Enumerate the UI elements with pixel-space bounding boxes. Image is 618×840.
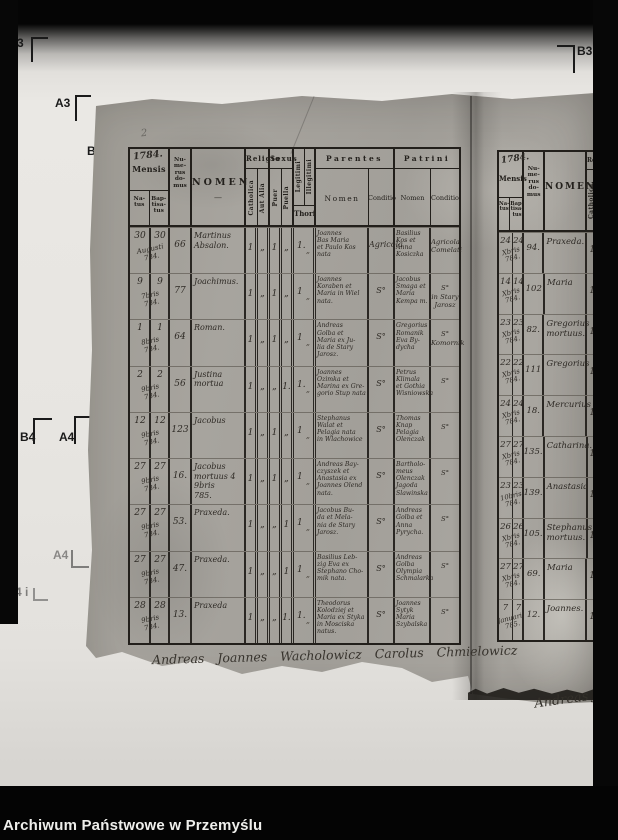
cell-godparents-name: Thomas Knap Pelagia Olenczak	[395, 413, 431, 458]
cell-natus-date: 27	[499, 562, 512, 572]
right-header-mensis-label: Mensis	[499, 174, 522, 183]
cell-legitimi-thori: 1„	[294, 320, 316, 365]
cell-child-name: Joannes.	[545, 600, 588, 640]
year-note: 1784.	[133, 148, 164, 162]
cell-godparents-name: Gregorius Romanik Eva By- dycha	[395, 320, 431, 365]
cell-puella-mark: „	[282, 228, 294, 273]
cell-catholica-mark: 1	[246, 413, 258, 458]
header-patrini-conditio-label: Conditio	[431, 194, 459, 202]
table-row: 28289bris 784.13.Praxeda1„„1.1.„Theodoru…	[130, 597, 459, 643]
header-patrini-label: Patrini	[395, 149, 459, 169]
cell-puer-mark: 1	[270, 274, 282, 319]
cell-legitimi-thori: 1„	[294, 552, 316, 597]
cell-puer-mark: „	[270, 367, 282, 412]
cell-date: 28289bris 784.	[130, 598, 170, 643]
cell-natus-date: 12	[130, 416, 150, 426]
cell-child-name: Anastasia	[545, 478, 588, 518]
cell-date: 27279bris 784.	[130, 459, 170, 504]
header-aut-alia-cell: Aut Alia	[258, 169, 269, 227]
right-header-numerus-domus-label: Nu- me- rus do- mus	[524, 152, 543, 198]
cell-month: 9bris 784.	[127, 564, 175, 589]
header-mensis-label: Mensis	[130, 164, 168, 174]
header-nomen-column: NOMEN —	[192, 149, 246, 225]
cell-parents-name: Joannes Ozimka et Marina ex Gre- gorio S…	[316, 367, 369, 412]
header-parentes-conditio-cell: Conditio	[369, 169, 395, 227]
header-sexus-label: Sexus	[270, 149, 292, 169]
cell-aut-alia-mark: „	[258, 274, 270, 319]
cell-child-name: Maria	[545, 559, 587, 599]
cell-parents-name: Andreas Bay- czyszek et Anastasia ex Joa…	[316, 459, 369, 504]
cell-date: 2626Xbris 784.	[499, 519, 524, 559]
cell-baptisatus-date: 2	[150, 370, 170, 380]
cell-child-name: Mercurius	[544, 396, 587, 436]
cell-aut-alia-mark: „	[258, 552, 270, 597]
cell-natus-date: 23	[499, 318, 512, 328]
cell-month: 7bris 784.	[127, 287, 175, 312]
cell-child-name: Praxeda.	[192, 505, 246, 550]
right-header-mensis-subcolumns: Na- tus Bap- tisa- tus	[499, 197, 522, 230]
cell-child-name: Gregorius mortuus.	[544, 315, 587, 355]
crop-mark-a4-label: A4	[59, 430, 74, 444]
table-row: 12129bris 784.123Jacobus1„1„1„Stephanus …	[130, 412, 459, 458]
cell-puella-mark: „	[282, 459, 294, 504]
cell-parents-name: Stephanus Walat et Pelagia nata in Wlach…	[316, 413, 369, 458]
cell-month: 9bris 784.	[127, 379, 175, 404]
header-parentes-column: Parentes Nomen Conditio	[316, 149, 395, 225]
cell-godparents-name: Petrus Klimala et Gothia Wisniowska	[395, 367, 431, 412]
cell-child-name: Stephanus mortuus.	[545, 519, 588, 559]
table-row: 997bris 784.77Joachimus.1„1„1„Joannes Ko…	[130, 273, 459, 319]
cell-godparents-name: Joannes Sytyk Maria Szybalska	[395, 598, 431, 643]
cell-natus-date: 27	[130, 462, 150, 472]
cell-aut-alia-mark: „	[258, 598, 270, 643]
crop-mark-b4-bracket-icon	[33, 418, 52, 444]
cell-puella-mark: 1.	[282, 367, 294, 412]
cell-legitimi-thori: 1.„	[294, 228, 316, 273]
cell-catholica-mark: 1	[246, 505, 258, 550]
cell-godparents-condition: S°	[431, 598, 459, 643]
cell-legitimi-mark: 1.	[297, 380, 306, 390]
table-row: 2626Xbris 784.105.Stephanus mortuus.1	[499, 518, 597, 559]
film-top-fade	[0, 0, 618, 72]
cell-legitimi-thori: 1„	[294, 459, 316, 504]
crop-mark-a4-lower-bracket-icon	[71, 550, 89, 568]
header-puella-cell: Puella	[282, 169, 293, 227]
cell-date: 118bris 784.	[130, 320, 170, 365]
cell-aut-alia-mark: „	[258, 459, 270, 504]
cell-illegitimi-mark: „	[306, 523, 310, 532]
cell-baptisatus-date: 1	[150, 323, 170, 333]
crop-mark-a3-bracket-icon	[75, 95, 91, 121]
cell-legitimi-mark: 1	[297, 333, 303, 343]
header-puer-cell: Puer	[270, 169, 282, 227]
cell-date: 2424Xbris 784.	[499, 396, 524, 436]
cell-legitimi-mark: 1.	[297, 241, 306, 251]
table-row: 2727Xbris 784.69.Maria1	[499, 558, 597, 599]
table-row: 229bris 784.56Justina mortua1„„1.1.„Joan…	[130, 366, 459, 412]
book-gutter-fold-line	[470, 96, 472, 694]
crop-mark-a4-lower-label: A4	[53, 548, 68, 562]
cell-date: 229bris 784.	[130, 367, 170, 412]
bottom-caption-bar: Archiwum Państwowe w Przemyślu	[0, 786, 618, 840]
table-row: 2424Xbris 784.18.Mercurius1	[499, 395, 597, 436]
cell-date: 2323Xbris 784.	[499, 315, 524, 355]
cell-parents-condition: S°	[369, 552, 395, 597]
cell-parents-name: Basilius Leb- zig Eva ex Stephano Cho- m…	[316, 552, 369, 597]
cell-aut-alia-mark: „	[258, 413, 270, 458]
cell-aut-alia-mark: „	[258, 367, 270, 412]
header-mensis-column: 1784. Mensis Na- tus Bap- tisa- tus	[130, 149, 170, 225]
cell-natus-date: 28	[130, 601, 150, 611]
header-legitimi-label: Legitimi	[295, 161, 302, 192]
cell-illegitimi-mark: „	[306, 292, 310, 301]
header-legitimi-subcolumns: Legitimi Illegitimi	[294, 149, 314, 206]
header-religio-subcolumns: Catholica Aut Alia	[246, 169, 268, 227]
cell-child-name: Joachimus.	[192, 274, 246, 319]
cell-parents-condition: S°	[369, 505, 395, 550]
cell-puella-mark: 1	[282, 552, 294, 597]
cell-godparents-name: Basilius Kos et Anna Kosiczka	[395, 228, 431, 273]
table-row: 118bris 784.64Roman.1„1„1„Andreas Golba …	[130, 319, 459, 365]
cell-godparents-name: Bartholo- meus Olenczak Jagoda Slawinska	[395, 459, 431, 504]
cell-legitimi-thori: 1„	[294, 274, 316, 319]
cell-date: 27279bris 784.	[130, 505, 170, 550]
cell-baptisatus-date: 12	[150, 416, 170, 426]
cell-godparents-condition: S°	[431, 459, 459, 504]
cell-natus-date: 30	[130, 231, 150, 241]
cell-natus-date: 9	[130, 277, 150, 287]
cell-catholica-mark: 1	[246, 552, 258, 597]
header-patrini-nomen-label: Nomen	[401, 194, 425, 202]
cell-baptisatus-date: 27	[150, 462, 170, 472]
cell-baptisatus-date: 9	[150, 277, 170, 287]
cell-natus-date: 27	[130, 555, 150, 565]
header-catholica-cell: Catholica	[246, 169, 258, 227]
cell-child-name: Jacobus mortuus 4 9bris 785.	[192, 459, 246, 504]
table-row: 27279bris 784.16.Jacobus mortuus 4 9bris…	[130, 458, 459, 504]
cell-parents-name: Andreas Golba et Maria ex Ju- lia de Sta…	[316, 320, 369, 365]
table-row: 27279bris 784.53.Praxeda.1„„11„Jacobus B…	[130, 504, 459, 550]
left-register-table: 1784. Mensis Na- tus Bap- tisa- tus Nu- …	[128, 147, 461, 645]
header-numerus-domus-column: Nu- me- rus do- mus	[170, 149, 192, 225]
crop-mark-b3-bracket-icon	[557, 45, 575, 73]
cell-child-name: Catharina.	[545, 437, 588, 477]
cell-puer-mark: 1	[270, 320, 282, 365]
cell-godparents-name: Jacobus Smaga et Maria Kempa m.	[395, 274, 431, 319]
header-aut-alia-label: Aut Alia	[259, 183, 266, 213]
header-patrini-subcolumns: Nomen Conditio	[395, 169, 459, 227]
cell-baptisatus-date: 27	[150, 555, 170, 565]
right-table-header: 1784. Mensis Na- tus Bap- tisa- tus Nu- …	[499, 152, 597, 232]
cell-godparents-condition: S° in Stary Jarosz	[431, 274, 459, 319]
cell-parents-name: Theodorus Kolodziej et Maria ex Styka in…	[316, 598, 369, 643]
cell-month: 8bris 784.	[127, 333, 175, 358]
table-row: 77Januarii 785.12.Joannes.1	[499, 599, 597, 640]
cell-month: 9bris 784.	[127, 471, 175, 496]
cell-catholica-mark: 1	[246, 320, 258, 365]
right-header-baptisatus-label: Bap- tisa- tus	[510, 198, 524, 230]
cell-child-name: Praxeda.	[544, 233, 587, 273]
crop-mark-a3-label: A3	[55, 96, 70, 110]
cell-puella-mark: 1	[282, 505, 294, 550]
cell-natus-date: 2	[130, 370, 150, 380]
cell-date: 2727Xbris 784.	[499, 559, 524, 599]
header-religio-label: Religio	[246, 149, 268, 169]
cell-aut-alia-mark: „	[258, 505, 270, 550]
table-row: 2424Xbris 784.94.Praxeda.1	[499, 232, 597, 273]
cell-date: 27279bris 784.	[130, 552, 170, 597]
cell-baptisatus-date: 28	[150, 601, 170, 611]
header-thori-label: Thori	[294, 206, 314, 225]
cell-parents-condition: S°	[369, 320, 395, 365]
cell-godparents-condition: S°	[431, 505, 459, 550]
cell-parents-name: Jacobus Bu- da et Mela- nia de Stary Jar…	[316, 505, 369, 550]
cell-natus-date: 24	[499, 399, 512, 409]
cell-parents-condition: S°	[369, 413, 395, 458]
cell-aut-alia-mark: „	[258, 320, 270, 365]
header-patrini-conditio-cell: Conditio	[431, 169, 459, 227]
table-row: 2323Xbris 784.82.Gregorius mortuus.1	[499, 314, 597, 355]
right-header-numerus-domus-column: Nu- me- rus do- mus	[524, 152, 545, 230]
cell-catholica-mark: 1	[246, 274, 258, 319]
cell-parents-condition: S°	[369, 598, 395, 643]
header-legitimi-column: Legitimi Illegitimi Thori	[294, 149, 316, 225]
header-sexus-column: Sexus Puer Puella	[270, 149, 294, 225]
cell-illegitimi-mark: „	[306, 570, 310, 579]
cell-baptisatus-date: 30	[150, 231, 170, 241]
header-illegitimi-label: Illegitimi	[306, 159, 313, 194]
crop-mark-3-bracket-icon	[31, 37, 48, 62]
cell-godparents-condition: S° Komornik	[431, 320, 459, 365]
cell-godparents-condition: S°	[431, 413, 459, 458]
cell-illegitimi-mark: „	[306, 338, 310, 347]
header-parentes-conditio-label: Conditio	[368, 194, 396, 202]
cell-puer-mark: 1	[270, 413, 282, 458]
cell-illegitimi-mark: „	[306, 246, 310, 255]
cell-puer-mark: „	[270, 552, 282, 597]
header-puer-label: Puer	[272, 189, 279, 206]
cell-child-name: Maria	[545, 274, 587, 314]
cell-natus-date: 27	[130, 508, 150, 518]
cell-puer-mark: 1	[270, 459, 282, 504]
left-table-header: 1784. Mensis Na- tus Bap- tisa- tus Nu- …	[130, 149, 459, 227]
header-parentes-label: Parentes	[316, 149, 393, 169]
table-row: 1414Xbris 784.102Maria1	[499, 273, 597, 314]
cell-date: 3030Augusti 784.	[130, 228, 170, 273]
cell-child-name: Praxeda	[192, 598, 246, 643]
cell-child-name: Roman.	[192, 320, 246, 365]
header-nomen-flourish: —	[192, 193, 244, 202]
table-row: 2727Xbris 784.135.Catharina.1	[499, 436, 597, 477]
header-patrini-column: Patrini Nomen Conditio	[395, 149, 459, 225]
cell-illegitimi-mark: „	[306, 477, 310, 486]
cell-parents-condition: S°	[369, 274, 395, 319]
cell-legitimi-thori: 1„	[294, 413, 316, 458]
cell-puella-mark: „	[282, 413, 294, 458]
cell-parents-condition: S°	[369, 459, 395, 504]
cell-month: 9bris 784.	[127, 518, 175, 543]
cell-legitimi-mark: 1	[297, 565, 303, 575]
cell-legitimi-mark: 1	[297, 287, 303, 297]
film-right-edge	[593, 0, 618, 788]
cell-natus-date: 1	[130, 323, 150, 333]
crop-mark-3-label: 3	[17, 36, 24, 50]
cell-puer-mark: 1	[270, 228, 282, 273]
header-catholica-label: Catholica	[248, 180, 255, 216]
cell-legitimi-thori: 1„	[294, 505, 316, 550]
cell-natus-date: 24	[499, 236, 512, 246]
right-header-nomen-column: NOMEN	[545, 152, 587, 230]
cell-godparents-condition: Agricola Comelati	[431, 228, 459, 273]
right-header-nomen-label: NOMEN	[545, 182, 585, 192]
cell-month: 9bris 784.	[127, 610, 175, 635]
header-parentes-nomen-cell: Nomen	[316, 169, 369, 227]
table-row: 232310bris 784.139.Anastasia1	[499, 477, 597, 518]
cell-date: 997bris 784.	[130, 274, 170, 319]
header-puella-label: Puella	[283, 186, 290, 210]
right-header-natus-label: Na- tus	[499, 198, 510, 230]
header-nomen-label: NOMEN	[192, 177, 244, 188]
cell-month: Augusti 784.	[127, 240, 175, 265]
cell-puella-mark: „	[282, 274, 294, 319]
archive-caption: Archiwum Państwowe w Przemyślu	[3, 817, 262, 834]
right-header-mensis-column: 1784. Mensis Na- tus Bap- tisa- tus	[499, 152, 524, 230]
archival-scan-viewer: 3 A3 B3 B. B4 A4 A4 4 i 2 1784. Mensis N…	[0, 0, 618, 840]
header-parentes-nomen-label: Nomen	[325, 194, 360, 203]
cell-puella-mark: „	[282, 320, 294, 365]
header-sexus-subcolumns: Puer Puella	[270, 169, 292, 227]
cell-natus-date: 26	[499, 522, 512, 532]
cell-aut-alia-mark: „	[258, 228, 270, 273]
cell-child-name: Gregorius	[544, 355, 587, 395]
cell-parents-condition: S°	[369, 367, 395, 412]
table-row: 2222Xbris 784.111Gregorius1	[499, 354, 597, 395]
cell-child-name: Justina mortua	[192, 367, 246, 412]
cell-legitimi-mark: 1.	[297, 611, 306, 621]
cell-child-name: Martinus Absalon.	[192, 228, 246, 273]
film-left-edge	[0, 0, 18, 624]
right-register-table: 1784. Mensis Na- tus Bap- tisa- tus Nu- …	[497, 150, 597, 642]
header-natus-label: Na- tus	[130, 191, 150, 225]
table-row: 3030Augusti 784.66Martinus Absalon.1„1„1…	[130, 227, 459, 273]
cell-natus-date: 22	[499, 358, 512, 368]
left-register-rows: 3030Augusti 784.66Martinus Absalon.1„1„1…	[130, 227, 459, 643]
cell-date: 2424Xbris 784.	[499, 233, 524, 273]
cell-natus-date: 14	[499, 277, 512, 287]
cell-puer-mark: „	[270, 598, 282, 643]
cell-catholica-mark: 1	[246, 459, 258, 504]
cell-date: 12129bris 784.	[130, 413, 170, 458]
cell-illegitimi-mark: „	[306, 385, 310, 394]
cell-godparents-condition: S°	[431, 367, 459, 412]
header-religio-column: Religio Catholica Aut Alia	[246, 149, 270, 225]
cell-parents-name: Joannes Koraben et Maria in Wiel nata.	[316, 274, 369, 319]
cell-legitimi-mark: 1	[297, 426, 303, 436]
cell-parents-name: Joannes Bas Maria et Paulo Kos nata	[316, 228, 369, 273]
pencil-note: 2	[140, 128, 147, 140]
cell-godparents-condition: S°	[431, 552, 459, 597]
cell-legitimi-thori: 1.„	[294, 367, 316, 412]
cell-date: 77Januarii 785.	[499, 600, 524, 640]
cell-illegitimi-mark: „	[306, 431, 310, 440]
cell-natus-date: 23	[499, 481, 512, 491]
cell-date: 232310bris 784.	[499, 478, 524, 518]
header-mensis-subcolumns: Na- tus Bap- tisa- tus	[130, 190, 168, 225]
cell-natus-date: 7	[499, 603, 512, 613]
cell-baptisatus-date: 27	[150, 508, 170, 518]
header-patrini-nomen-cell: Nomen	[395, 169, 431, 227]
cell-legitimi-mark: 1	[297, 472, 303, 482]
cell-date: 2222Xbris 784.	[499, 355, 524, 395]
header-numerus-domus-label: Nu- me- rus do- mus	[170, 149, 190, 189]
crop-mark-4i-bracket-icon	[33, 588, 48, 601]
table-row: 27279bris 784.47.Praxeda.1„„11„Basilius …	[130, 551, 459, 597]
right-register-rows: 2424Xbris 784.94.Praxeda.11414Xbris 784.…	[499, 232, 597, 640]
cell-puella-mark: 1.	[282, 598, 294, 643]
cell-child-name: Praxeda.	[192, 552, 246, 597]
cell-godparents-name: Andreas Golba et Anna Pyrycha.	[395, 505, 431, 550]
header-illegitimi-cell: Illegitimi	[305, 149, 315, 205]
cell-legitimi-thori: 1.„	[294, 598, 316, 643]
cell-catholica-mark: 1	[246, 598, 258, 643]
cell-catholica-mark: 1	[246, 367, 258, 412]
header-baptisatus-label: Bap- tisa- tus	[150, 191, 169, 225]
cell-date: 2727Xbris 784.	[499, 437, 524, 477]
cell-date: 1414Xbris 784.	[499, 274, 524, 314]
cell-natus-date: 27	[499, 440, 512, 450]
cell-godparents-name: Andreas Golba Olympia Schmalarka	[395, 552, 431, 597]
header-legitimi-cell: Legitimi	[294, 149, 305, 205]
header-parentes-subcolumns: Nomen Conditio	[316, 169, 393, 227]
crop-mark-b3-label: B3	[577, 44, 592, 58]
cell-illegitimi-mark: „	[306, 616, 310, 625]
cell-catholica-mark: 1	[246, 228, 258, 273]
cell-parents-condition: Agricola	[369, 228, 395, 273]
cell-puer-mark: „	[270, 505, 282, 550]
cell-legitimi-mark: 1	[297, 518, 303, 528]
cell-month: 9bris 784.	[127, 425, 175, 450]
cell-child-name: Jacobus	[192, 413, 246, 458]
